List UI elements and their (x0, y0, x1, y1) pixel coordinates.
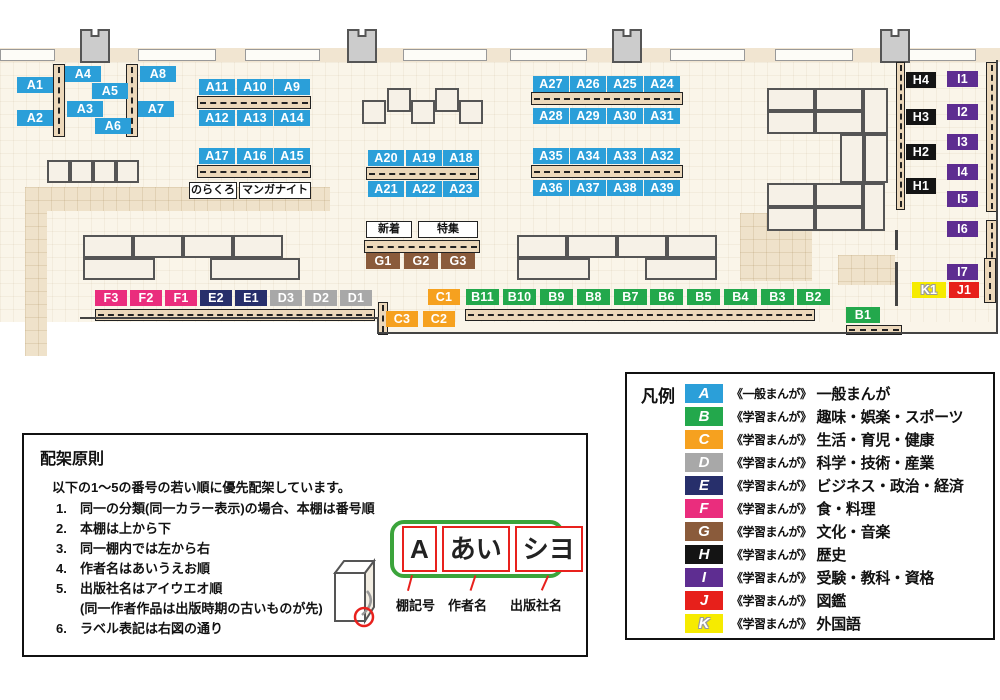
shelf-label-E2: E2 (200, 290, 232, 306)
caption-3: 出版社名 (510, 595, 562, 614)
principle-item-1: 1.同一の分類(同一カラー表示)の場合、本棚は番号順 (56, 499, 375, 519)
window (138, 49, 216, 61)
bookshelf (984, 258, 996, 303)
reading-table (815, 88, 863, 111)
reading-table (93, 160, 116, 183)
principle-number: 6. (56, 619, 80, 639)
reading-table (567, 235, 617, 258)
shelf-label-A9: A9 (274, 79, 310, 95)
reading-table (116, 160, 139, 183)
shelf-label-F1: F1 (165, 290, 197, 306)
shelf-label-H4: H4 (906, 72, 936, 88)
legend-series-label: 《学習まんが》 (731, 615, 812, 632)
principle-text: (同一作者作品は出版時期の古いものが先) (80, 601, 323, 616)
bookshelf (465, 309, 815, 321)
principle-number: 4. (56, 559, 80, 579)
legend-row-E: E《学習まんが》ビジネス・政治・経済 (685, 476, 964, 495)
reading-table (767, 111, 815, 134)
shelf-label-D2: D2 (305, 290, 337, 306)
shelf-label-A30: A30 (607, 108, 643, 124)
library-floor-map-page: A1A2A4A5A3A6A8A7A11A10A9A12A13A14A17A16A… (0, 0, 1000, 700)
book-illustration (324, 553, 386, 633)
legend-rows: A《一般まんが》一般まんがB《学習まんが》趣味・娯楽・スポーツC《学習まんが》生… (685, 380, 964, 637)
bookshelf (197, 96, 311, 109)
shelf-label-A20: A20 (368, 150, 404, 166)
principle-text: ラベル表記は右図の通り (80, 621, 223, 636)
shelf-label-B9: B9 (540, 289, 573, 305)
legend-chip-J: J (685, 591, 723, 610)
shelf-label-H3: H3 (906, 109, 936, 125)
shelf-label-A25: A25 (607, 76, 643, 92)
legend-category-label: 図鑑 (817, 590, 846, 611)
shelf-label-C2: C2 (423, 311, 455, 327)
shelf-label-A31: A31 (644, 108, 680, 124)
shelf-label-A33: A33 (607, 148, 643, 164)
legend-chip-H: H (685, 545, 723, 564)
shelf-label-A6: A6 (95, 118, 131, 134)
shelf-label-F2: F2 (130, 290, 162, 306)
shelf-label-C1: C1 (428, 289, 460, 305)
reading-table (411, 100, 435, 124)
shelf-label-A21: A21 (368, 181, 404, 197)
wall (895, 262, 898, 306)
reading-table (617, 235, 667, 258)
shelf-label-H1: H1 (906, 178, 936, 194)
shelf-label-A35: A35 (533, 148, 569, 164)
reading-table (183, 235, 233, 258)
reading-table (815, 207, 863, 231)
legend-title: 凡例 (641, 382, 675, 407)
shelf-label-I3: I3 (947, 134, 978, 150)
reading-table (815, 183, 863, 207)
shelf-label-B6: B6 (650, 289, 683, 305)
shelf-label-A36: A36 (533, 180, 569, 196)
shelf-label-G1: G1 (366, 253, 400, 269)
shelf-label-A7: A7 (138, 101, 174, 117)
legend-category-label: 趣味・娯楽・スポーツ (817, 406, 964, 427)
legend-series-label: 《学習まんが》 (731, 431, 812, 448)
legend-row-I: I《学習まんが》受験・教科・資格 (685, 568, 964, 587)
shelf-label-A15: A15 (274, 148, 310, 164)
reading-table (863, 88, 888, 134)
principle-number: 1. (56, 499, 80, 519)
bookshelf (896, 62, 905, 210)
shelf-label-D3: D3 (270, 290, 302, 306)
shelf-label-A24: A24 (644, 76, 680, 92)
legend-series-label: 《学習まんが》 (731, 523, 812, 540)
legend-series-label: 《学習まんが》 (731, 569, 812, 586)
shelf-label-A8: A8 (140, 66, 176, 82)
shelf-label-H2: H2 (906, 144, 936, 160)
legend-series-label: 《学習まんが》 (731, 500, 812, 517)
window (510, 49, 587, 61)
label-segment-2: あい (442, 526, 510, 572)
legend-chip-I: I (685, 568, 723, 587)
legend-category-label: 一般まんが (817, 383, 891, 404)
reading-table (667, 235, 717, 258)
shelf-label-A18: A18 (443, 150, 479, 166)
bookshelf (53, 64, 65, 137)
shelf-label-E1: E1 (235, 290, 267, 306)
legend-series-label: 《学習まんが》 (731, 546, 812, 563)
reading-table (47, 160, 70, 183)
shelf-label-A26: A26 (570, 76, 606, 92)
legend-chip-C: C (685, 430, 723, 449)
reading-table (459, 100, 483, 124)
legend-category-label: 生活・育児・健康 (817, 429, 935, 450)
window (245, 49, 320, 61)
bookshelf (531, 165, 683, 178)
reading-table (435, 88, 459, 112)
shelf-label-A37: A37 (570, 180, 606, 196)
shelf-label-A2: A2 (17, 110, 53, 126)
shelf-label-A5: A5 (92, 83, 128, 99)
principle-number: 3. (56, 539, 80, 559)
floor-path (838, 255, 895, 285)
principle-text: 本棚は上から下 (80, 521, 171, 536)
reading-table (83, 258, 155, 280)
shelf-label-I1: I1 (947, 71, 978, 87)
shelf-label-A32: A32 (644, 148, 680, 164)
reading-table (210, 258, 300, 280)
shelf-label-B2: B2 (797, 289, 830, 305)
reading-table (387, 88, 411, 112)
shelf-label-A13: A13 (237, 110, 273, 126)
legend-row-G: G《学習まんが》文化・音楽 (685, 522, 964, 541)
legend-series-label: 《一般まんが》 (731, 385, 812, 402)
principles-box: 配架原則 以下の1〜5の番号の若い順に優先配架しています。 1.同一の分類(同一… (22, 433, 588, 657)
window (775, 49, 853, 61)
shelf-label-C3: C3 (386, 311, 418, 327)
legend-chip-B: B (685, 407, 723, 426)
shelf-label-B11: B11 (466, 289, 499, 305)
reading-table (767, 88, 815, 111)
reading-table (362, 100, 386, 124)
principle-number: 2. (56, 519, 80, 539)
pillar (880, 29, 910, 63)
bookshelf (531, 92, 683, 105)
reading-table (70, 160, 93, 183)
floor-path (25, 187, 47, 356)
legend-series-label: 《学習まんが》 (731, 477, 812, 494)
reading-table (840, 134, 864, 183)
wall (996, 60, 998, 334)
shelf-label-B8: B8 (577, 289, 610, 305)
shelf-label-B5: B5 (687, 289, 720, 305)
shelf-label-A27: A27 (533, 76, 569, 92)
legend-category-label: 食・料理 (817, 498, 876, 519)
info-label: マンガナイト (239, 182, 311, 199)
shelf-label-A14: A14 (274, 110, 310, 126)
reading-table (133, 235, 183, 258)
caption-1: 棚記号 (396, 595, 435, 614)
principle-item-2: 2.本棚は上から下 (56, 519, 375, 539)
principle-text: 出版社名はアイウエオ順 (80, 581, 222, 596)
shelf-label-A39: A39 (644, 180, 680, 196)
info-label: 特集 (418, 221, 478, 238)
bookshelf (95, 309, 375, 321)
legend-chip-E: E (685, 476, 723, 495)
shelf-label-G2: G2 (404, 253, 438, 269)
principle-text: 作者名はあいうえお順 (80, 561, 210, 576)
reading-table (233, 235, 283, 258)
principles-title: 配架原則 (40, 445, 104, 469)
shelf-label-A1: A1 (17, 77, 53, 93)
legend-row-J: J《学習まんが》図鑑 (685, 591, 964, 610)
legend-row-F: F《学習まんが》食・料理 (685, 499, 964, 518)
window (0, 49, 55, 61)
shelf-label-I2: I2 (947, 104, 978, 120)
shelf-label-B4: B4 (724, 289, 757, 305)
legend-row-K: K《学習まんが》外国語 (685, 614, 964, 633)
shelf-label-B3: B3 (761, 289, 794, 305)
shelf-label-G3: G3 (441, 253, 475, 269)
reading-table (645, 258, 717, 280)
wall (80, 317, 378, 319)
bookshelf (197, 165, 311, 178)
reading-table (767, 183, 815, 207)
label-segment-1: A (402, 526, 437, 572)
legend-row-A: A《一般まんが》一般まんが (685, 384, 964, 403)
shelf-label-B7: B7 (614, 289, 647, 305)
shelf-label-I7: I7 (947, 264, 978, 280)
pillar (612, 29, 642, 63)
shelf-label-A4: A4 (65, 66, 101, 82)
shelf-label-K1: K1 (912, 282, 946, 298)
shelf-label-I5: I5 (947, 191, 978, 207)
shelf-label-A10: A10 (237, 79, 273, 95)
legend-box: 凡例 A《一般まんが》一般まんがB《学習まんが》趣味・娯楽・スポーツC《学習まん… (625, 372, 995, 640)
shelf-label-A11: A11 (199, 79, 235, 95)
legend-row-B: B《学習まんが》趣味・娯楽・スポーツ (685, 407, 964, 426)
principle-text: 同一棚内では左から右 (80, 541, 210, 556)
legend-series-label: 《学習まんが》 (731, 592, 812, 609)
legend-chip-F: F (685, 499, 723, 518)
legend-row-H: H《学習まんが》歴史 (685, 545, 964, 564)
shelf-label-F3: F3 (95, 290, 127, 306)
bookshelf (366, 167, 479, 180)
reading-table (517, 258, 590, 280)
reading-table (83, 235, 133, 258)
legend-chip-A: A (685, 384, 723, 403)
pillar (80, 29, 110, 63)
legend-series-label: 《学習まんが》 (731, 408, 812, 425)
shelf-label-A28: A28 (533, 108, 569, 124)
label-segment-3: シヨ (515, 526, 583, 572)
principle-text: 同一の分類(同一カラー表示)の場合、本棚は番号順 (80, 501, 375, 516)
principle-number: 5. (56, 579, 80, 599)
reading-table (815, 111, 863, 134)
reading-table (517, 235, 567, 258)
shelf-label-example: Aあいシヨ (390, 520, 564, 578)
shelf-label-A17: A17 (199, 148, 235, 164)
window (908, 49, 976, 61)
shelf-label-J1: J1 (949, 282, 979, 298)
caption-2: 作者名 (448, 595, 487, 614)
legend-chip-G: G (685, 522, 723, 541)
info-label: のらくろ (189, 182, 237, 199)
shelf-label-B10: B10 (503, 289, 536, 305)
legend-category-label: ビジネス・政治・経済 (817, 475, 964, 496)
legend-category-label: 科学・技術・産業 (817, 452, 935, 473)
wall (895, 230, 898, 250)
shelf-label-A22: A22 (406, 181, 442, 197)
window (403, 49, 487, 61)
window (670, 49, 745, 61)
wall (377, 332, 998, 334)
legend-category-label: 歴史 (817, 544, 846, 565)
pillar (347, 29, 377, 63)
shelf-label-A23: A23 (443, 181, 479, 197)
shelf-label-A34: A34 (570, 148, 606, 164)
shelf-label-B1: B1 (846, 307, 880, 323)
shelf-label-A38: A38 (607, 180, 643, 196)
shelf-label-A19: A19 (406, 150, 442, 166)
shelf-label-I6: I6 (947, 221, 978, 237)
reading-table (863, 183, 885, 231)
legend-row-C: C《学習まんが》生活・育児・健康 (685, 430, 964, 449)
reading-table (864, 134, 888, 183)
shelf-label-A16: A16 (237, 148, 273, 164)
shelf-label-I4: I4 (947, 164, 978, 180)
legend-category-label: 受験・教科・資格 (817, 567, 935, 588)
legend-category-label: 外国語 (817, 613, 861, 634)
principles-intro: 以下の1〜5の番号の若い順に優先配架しています。 (52, 477, 351, 496)
legend-chip-D: D (685, 453, 723, 472)
shelf-label-A12: A12 (199, 110, 235, 126)
shelf-label-A3: A3 (67, 101, 103, 117)
bookshelf (364, 240, 480, 253)
legend-row-D: D《学習まんが》科学・技術・産業 (685, 453, 964, 472)
shelf-label-A29: A29 (570, 108, 606, 124)
legend-chip-K: K (685, 614, 723, 633)
legend-category-label: 文化・音楽 (817, 521, 891, 542)
reading-table (767, 207, 815, 231)
info-label: 新着 (366, 221, 412, 238)
legend-series-label: 《学習まんが》 (731, 454, 812, 471)
shelf-label-D1: D1 (340, 290, 372, 306)
